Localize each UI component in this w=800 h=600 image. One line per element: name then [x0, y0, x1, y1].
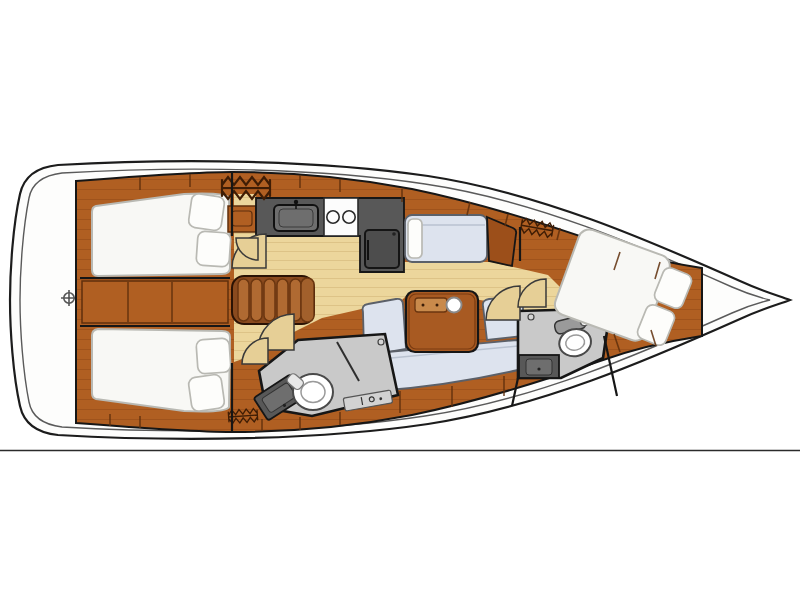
stern-locker: [80, 278, 230, 326]
corner-fitting: [528, 314, 534, 320]
pillow: [196, 231, 231, 267]
corner-fitting: [378, 339, 384, 345]
cup-holder: [447, 298, 462, 313]
pillow: [196, 338, 231, 374]
nav-berth: [405, 215, 516, 266]
pillow: [188, 374, 225, 412]
burner: [343, 211, 355, 223]
aft-cabin-port: [92, 193, 231, 276]
pillow: [188, 193, 225, 231]
floor-plan-canvas: [0, 0, 800, 600]
yacht-layout-diagram: [0, 0, 800, 600]
aft-cabin-starboard: [92, 329, 231, 412]
table-plaque: [415, 298, 447, 312]
burner: [327, 211, 339, 223]
berth-pillow: [408, 219, 422, 258]
companionway-steps: [232, 276, 314, 324]
